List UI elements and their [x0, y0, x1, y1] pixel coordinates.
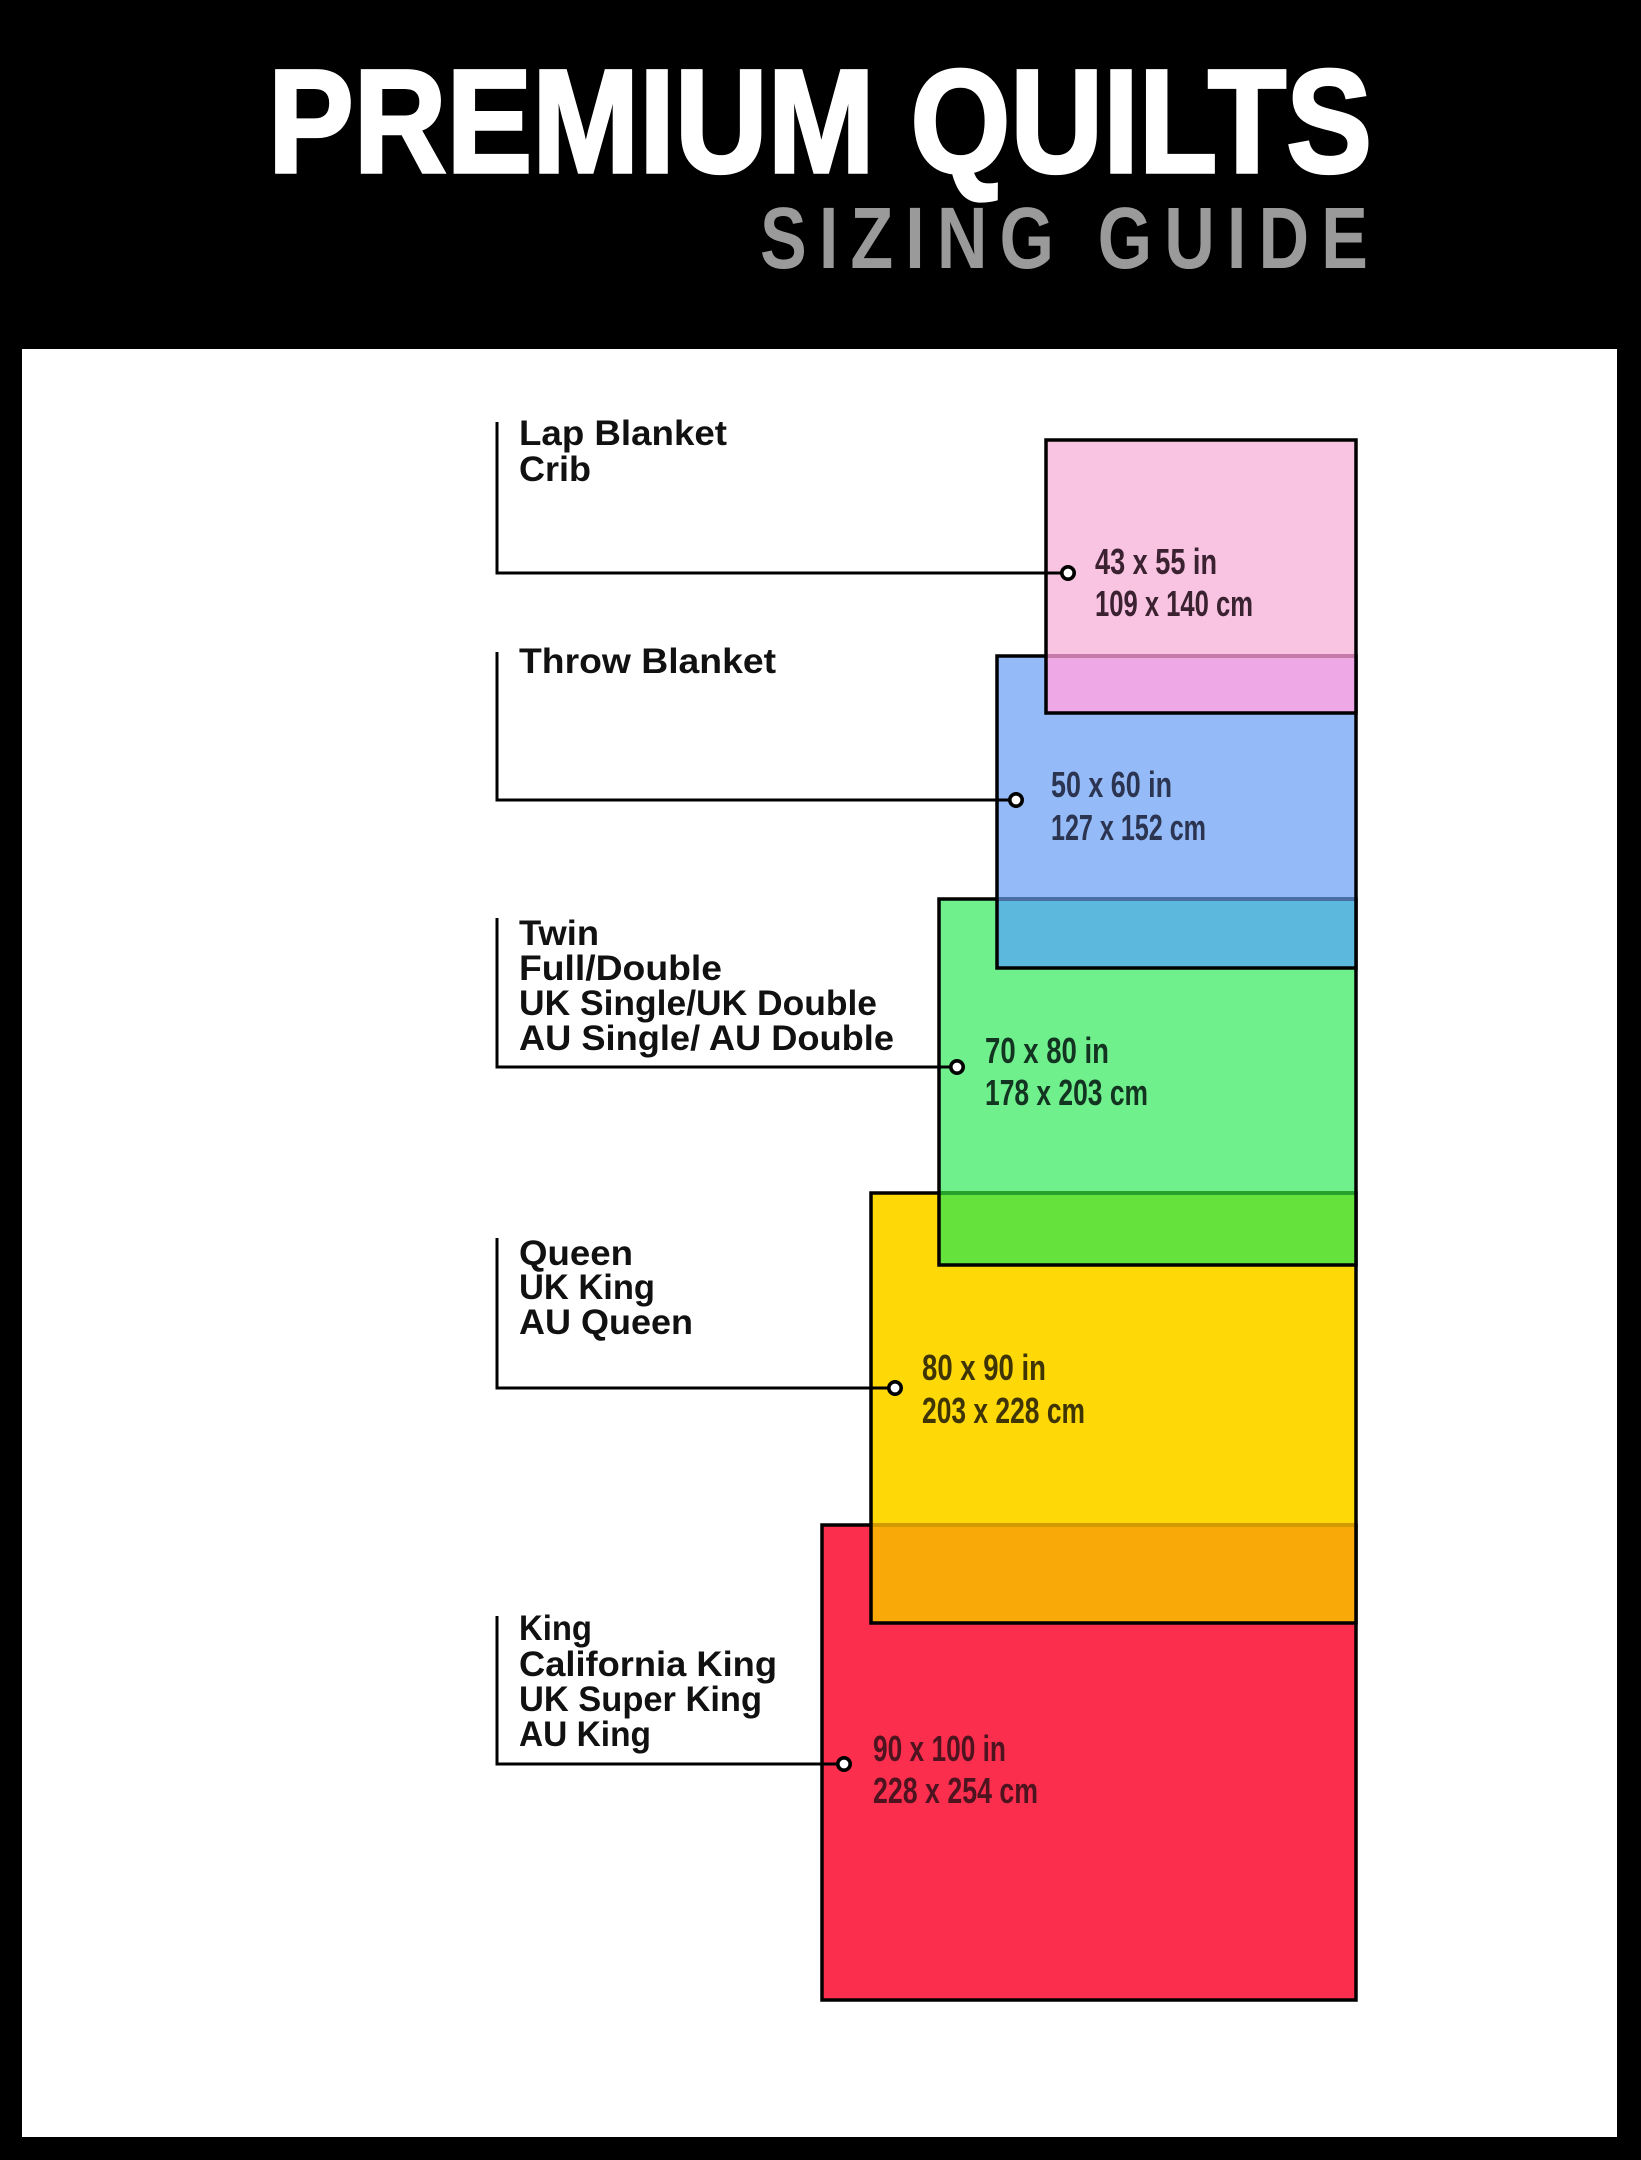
- svg-text:203 x 228 cm: 203 x 228 cm: [922, 1390, 1085, 1431]
- svg-text:PREMIUM QUILTS: PREMIUM QUILTS: [268, 40, 1372, 204]
- svg-text:127 x 152 cm: 127 x 152 cm: [1051, 807, 1206, 848]
- svg-text:228 x 254 cm: 228 x 254 cm: [873, 1770, 1038, 1811]
- svg-text:70 x 80 in: 70 x 80 in: [985, 1030, 1109, 1071]
- svg-text:King: King: [519, 1609, 592, 1648]
- svg-text:California King: California King: [519, 1645, 777, 1684]
- svg-text:43 x 55 in: 43 x 55 in: [1095, 541, 1217, 582]
- svg-text:80 x 90 in: 80 x 90 in: [922, 1347, 1046, 1388]
- svg-text:SIZING GUIDE: SIZING GUIDE: [760, 190, 1380, 287]
- svg-text:AU King: AU King: [519, 1715, 651, 1754]
- svg-text:109 x 140 cm: 109 x 140 cm: [1095, 583, 1253, 624]
- svg-text:Crib: Crib: [519, 450, 591, 489]
- svg-text:Full/Double: Full/Double: [519, 949, 722, 988]
- svg-text:Throw Blanket: Throw Blanket: [519, 642, 776, 681]
- svg-text:90 x 100 in: 90 x 100 in: [873, 1728, 1006, 1769]
- svg-text:50 x 60 in: 50 x 60 in: [1051, 764, 1172, 805]
- svg-text:178 x 203 cm: 178 x 203 cm: [985, 1072, 1148, 1113]
- svg-text:AU Single/ AU Double: AU Single/ AU Double: [519, 1019, 894, 1058]
- svg-text:UK Single/UK Double: UK Single/UK Double: [519, 984, 877, 1023]
- svg-text:Twin: Twin: [519, 914, 599, 953]
- svg-text:UK Super King: UK Super King: [519, 1680, 762, 1719]
- svg-text:AU Queen: AU Queen: [519, 1303, 693, 1342]
- svg-text:UK King: UK King: [519, 1268, 655, 1307]
- svg-text:Lap Blanket: Lap Blanket: [519, 414, 727, 453]
